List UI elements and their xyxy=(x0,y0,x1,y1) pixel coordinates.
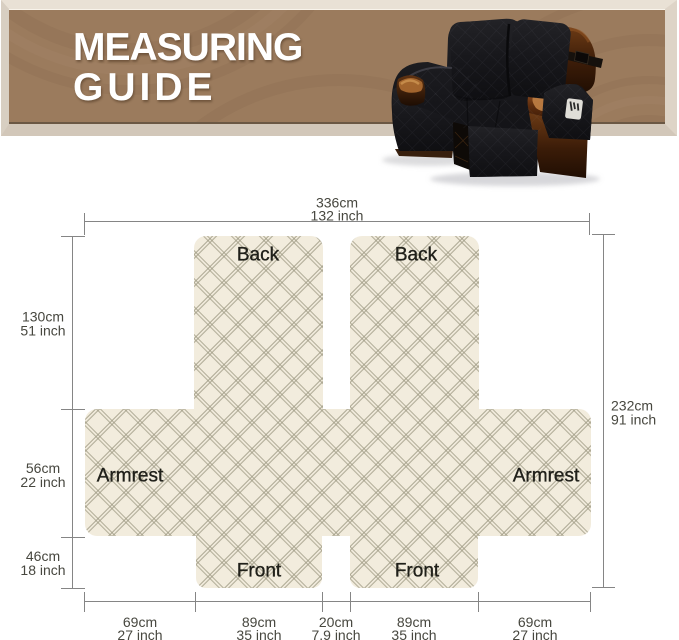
svg-text:35 inch: 35 inch xyxy=(391,627,436,640)
svg-text:Armrest: Armrest xyxy=(513,466,580,487)
svg-text:Front: Front xyxy=(395,561,440,582)
svg-text:Back: Back xyxy=(395,245,438,266)
svg-text:27 inch: 27 inch xyxy=(512,627,557,640)
svg-text:7.9 inch: 7.9 inch xyxy=(311,627,360,640)
svg-text:18 inch: 18 inch xyxy=(20,562,65,578)
svg-text:22 inch: 22 inch xyxy=(20,474,65,490)
svg-text:Back: Back xyxy=(237,245,280,266)
svg-text:91 inch: 91 inch xyxy=(611,412,656,428)
svg-text:Armrest: Armrest xyxy=(97,466,164,487)
svg-text:51 inch: 51 inch xyxy=(20,323,65,339)
svg-text:35 inch: 35 inch xyxy=(236,627,281,640)
svg-text:27 inch: 27 inch xyxy=(117,627,162,640)
svg-text:Front: Front xyxy=(237,561,282,582)
svg-text:132 inch: 132 inch xyxy=(311,208,364,224)
